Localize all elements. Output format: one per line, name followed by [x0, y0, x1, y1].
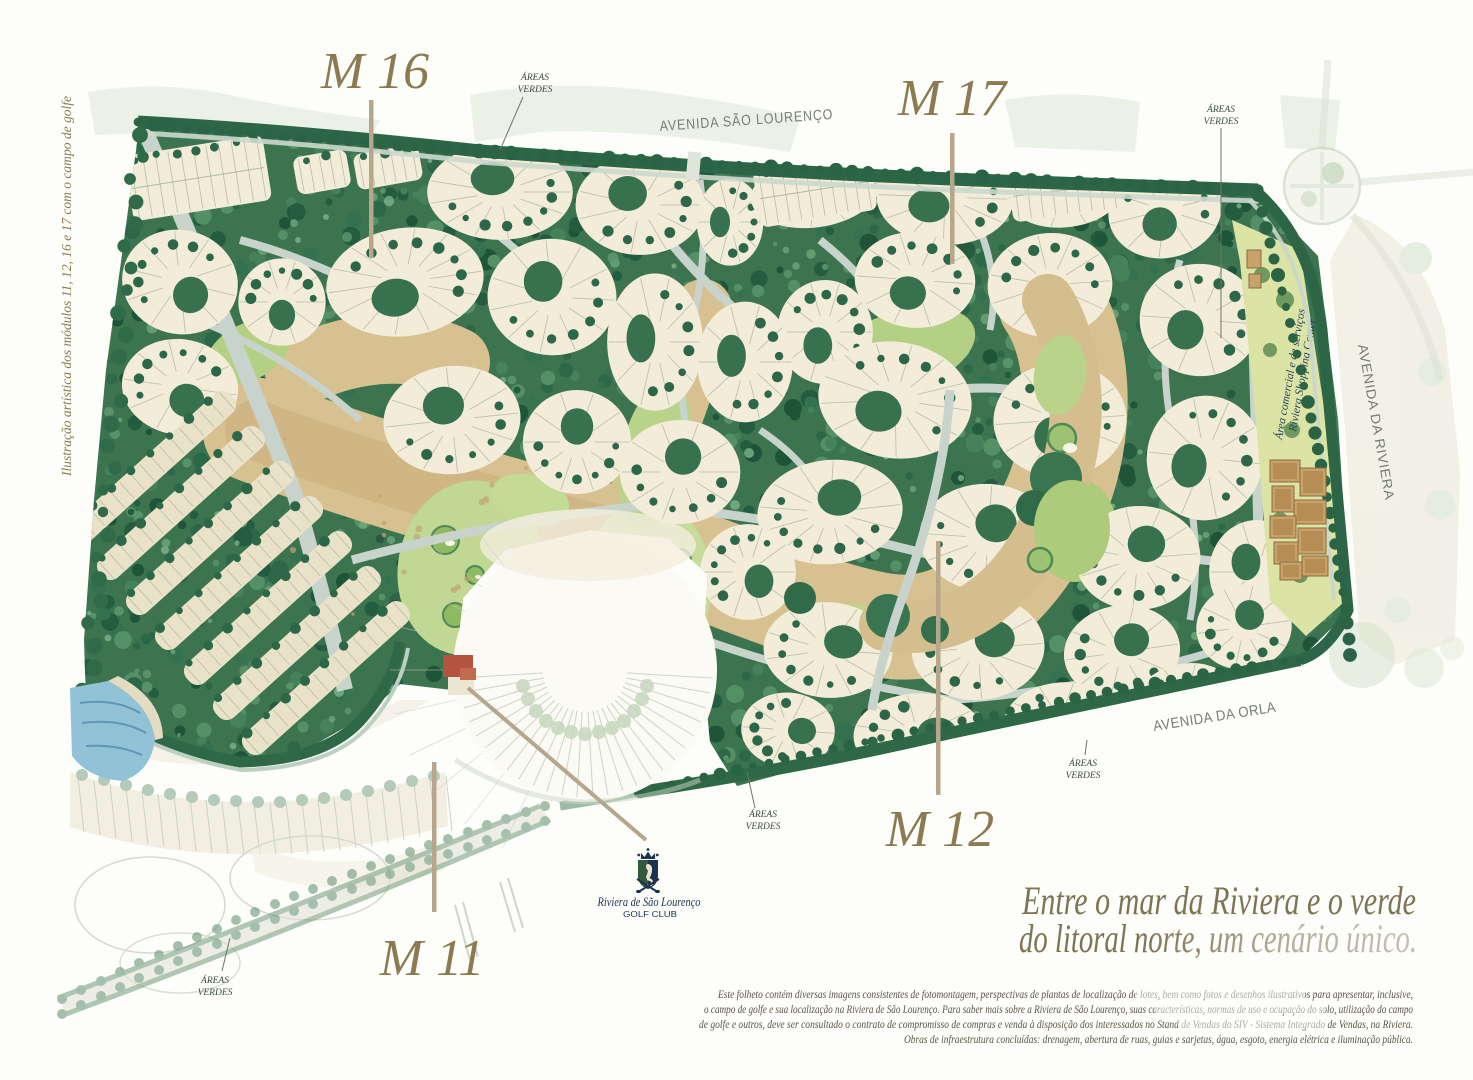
- svg-text:Ilustração artística dos módul: Ilustração artística dos módulos 11, 12,…: [60, 96, 75, 477]
- svg-text:M 12: M 12: [885, 801, 994, 858]
- svg-text:ÁREAS: ÁREAS: [200, 974, 229, 986]
- svg-text:M 17: M 17: [897, 70, 1008, 127]
- svg-text:ÁREAS: ÁREAS: [1206, 103, 1235, 115]
- svg-text:GOLF CLUB: GOLF CLUB: [623, 909, 677, 919]
- svg-text:VERDES: VERDES: [198, 988, 233, 998]
- svg-text:ÁREAS: ÁREAS: [748, 808, 777, 820]
- svg-text:ÁREAS: ÁREAS: [1068, 757, 1097, 769]
- svg-text:Este folheto contém diversas i: Este folheto contém diversas imagens con…: [717, 989, 1413, 1001]
- svg-text:M 16: M 16: [320, 43, 429, 100]
- svg-text:Obras de infraestrutura conclu: Obras de infraestrutura concluídas: dren…: [904, 1034, 1413, 1046]
- svg-text:VERDES: VERDES: [746, 822, 781, 832]
- svg-text:VERDES: VERDES: [518, 85, 553, 95]
- svg-text:VERDES: VERDES: [1204, 117, 1239, 127]
- svg-text:VERDES: VERDES: [1066, 771, 1101, 781]
- svg-text:Riviera de São Lourenço: Riviera de São Lourenço: [597, 894, 701, 909]
- svg-text:ÁREAS: ÁREAS: [520, 71, 549, 83]
- svg-text:do litoral norte, um cenário ú: do litoral norte, um cenário único.: [1019, 916, 1417, 961]
- svg-text:M 11: M 11: [379, 930, 484, 987]
